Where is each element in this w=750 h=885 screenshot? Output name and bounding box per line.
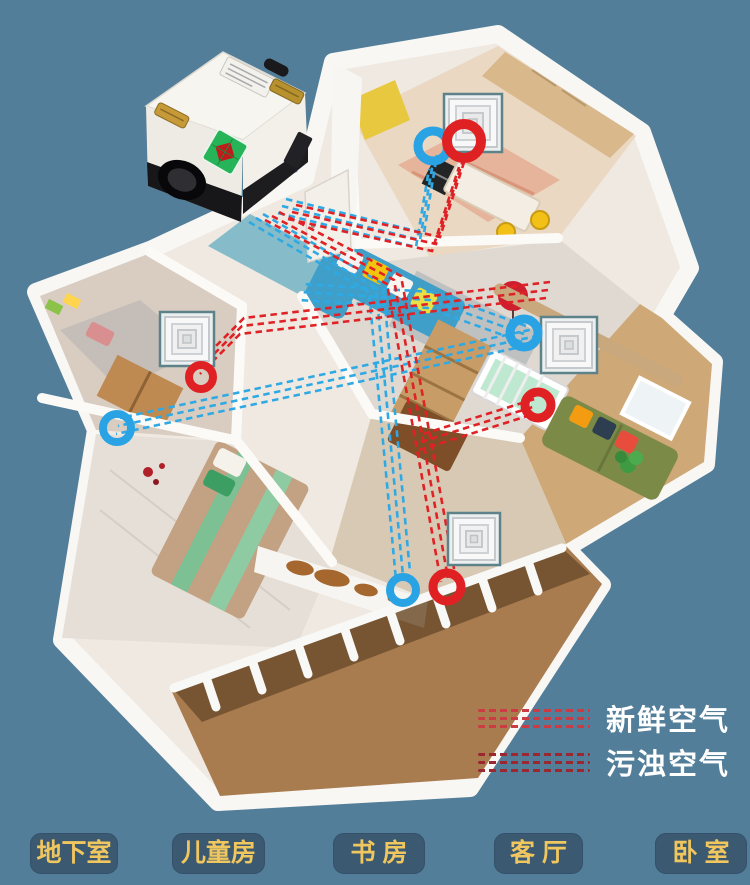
legend-item-fresh-air: 新鲜空气: [478, 696, 738, 740]
legend-label-fresh-air: 新鲜空气: [606, 697, 730, 739]
ceiling-diffuser-icon: [448, 513, 500, 565]
room-label-basement: 地下室: [30, 833, 118, 874]
room-label-bedroom: 卧 室: [655, 833, 747, 874]
fresh-air-line-icon: [478, 704, 590, 733]
legend: 新鲜空气 污浊空气: [478, 696, 738, 784]
room-label-study: 书 房: [333, 833, 425, 874]
ceiling-diffuser-icon: [160, 312, 214, 366]
promo-image: 新鲜空气 污浊空气 地下室 儿童房 书 房 客 厅 卧 室: [0, 0, 750, 885]
polluted-air-line-icon: [478, 748, 590, 777]
legend-item-polluted-air: 污浊空气: [478, 740, 738, 784]
room-label-children-room: 儿童房: [172, 833, 265, 874]
ceiling-diffuser-icon: [541, 317, 597, 373]
legend-label-polluted-air: 污浊空气: [606, 741, 730, 783]
room-label-living-room: 客 厅: [494, 833, 583, 874]
